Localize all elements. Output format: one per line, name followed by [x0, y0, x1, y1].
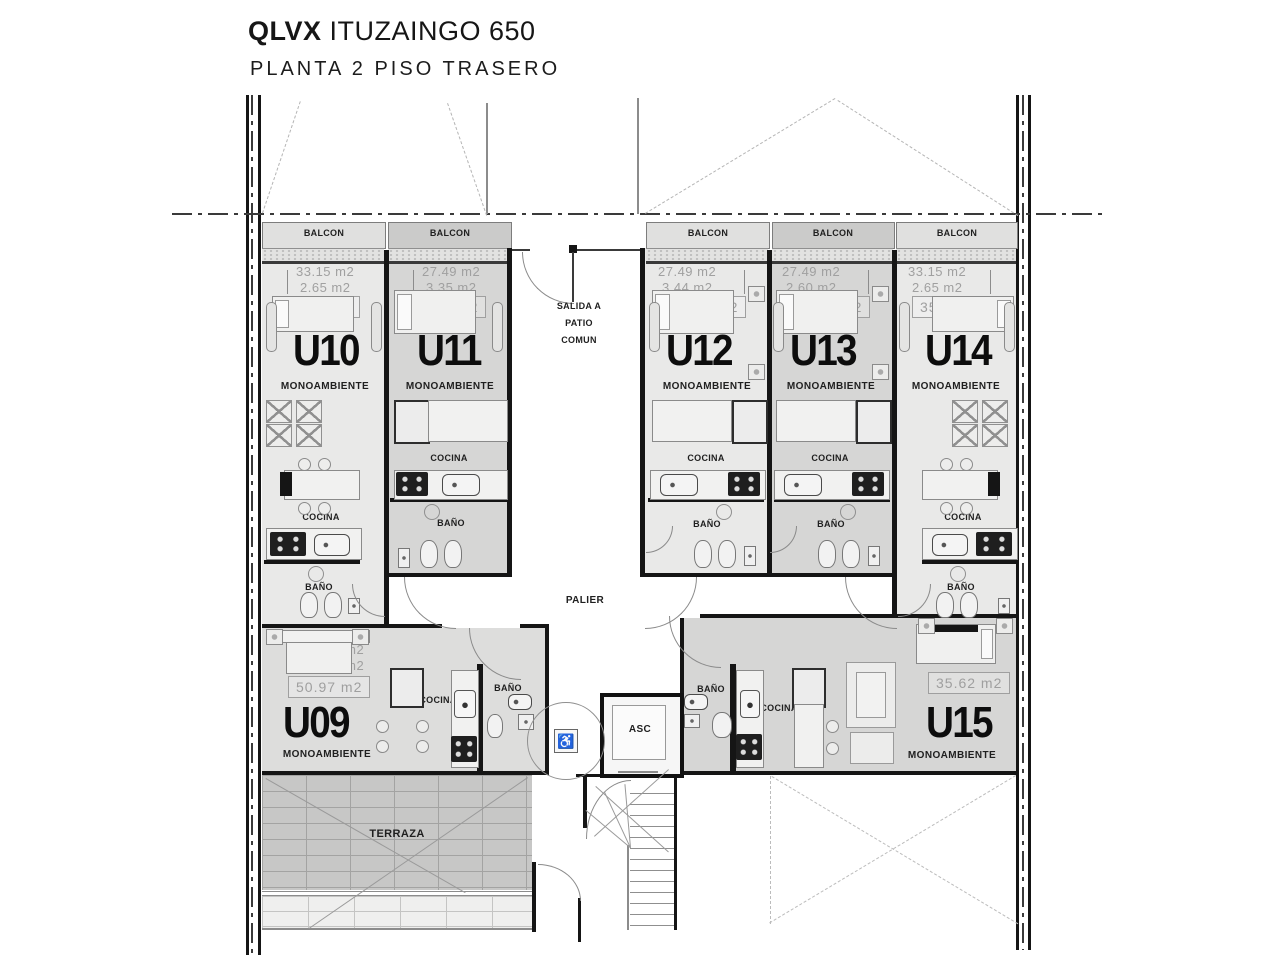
u15-type: MONOAMBIENTE: [908, 750, 996, 761]
u09-id: U09: [283, 698, 349, 748]
stove-icon: [396, 472, 428, 496]
shower-drain-icon: [744, 546, 756, 566]
stove-icon: [852, 472, 884, 496]
elevator-label: ASC: [629, 724, 651, 735]
u09-type: MONOAMBIENTE: [283, 749, 371, 760]
kitchen-island: [922, 470, 998, 500]
chair-icon: [952, 424, 978, 447]
bathroom-label: BAÑO: [947, 582, 975, 592]
exit-door-swing: [522, 252, 574, 304]
wall: [892, 250, 897, 618]
u14-covered: 33.15 m2: [908, 264, 966, 279]
void-dash: [770, 776, 771, 924]
property-line-left: [251, 95, 253, 955]
u11-type: MONOAMBIENTE: [406, 381, 494, 392]
chair-icon: [296, 424, 322, 447]
u12-type: MONOAMBIENTE: [663, 381, 751, 392]
chair-icon: [982, 400, 1008, 423]
kitchen-label: COCINA: [430, 453, 467, 463]
ceiling-light-icon: [308, 566, 324, 582]
toilet-icon: [694, 540, 712, 568]
projection-dash: [837, 100, 1018, 216]
fridge-icon: [856, 400, 892, 444]
stool: [376, 720, 389, 733]
shower-drain-icon: [398, 548, 410, 568]
headboard: [934, 625, 978, 632]
closet-icon: [748, 364, 765, 380]
u14-uncovered: 2.65 m2: [912, 280, 962, 295]
pillow: [397, 294, 412, 330]
stool: [940, 502, 953, 515]
sink-icon: [442, 474, 480, 496]
wall: [674, 778, 677, 930]
kitchen-island: [794, 704, 824, 768]
wall-pillar: [1004, 302, 1015, 352]
stool: [826, 742, 839, 755]
wall-pillar: [371, 302, 382, 352]
exit-label-line3: COMUN: [561, 335, 597, 345]
exit-label-line2: PATIO: [565, 318, 593, 328]
stool: [960, 502, 973, 515]
projection-dash: [645, 98, 835, 214]
ceiling-light-icon: [716, 504, 732, 520]
sink-icon: [660, 474, 698, 496]
kitchen-label: COCINA: [687, 453, 724, 463]
chair-icon: [982, 424, 1008, 447]
appliance-icon: [988, 472, 1000, 496]
wall: [384, 250, 389, 628]
wall: [264, 560, 360, 564]
closet-icon: [266, 629, 283, 645]
stair-stringer: [627, 845, 629, 930]
u09-total: 50.97 m2: [288, 676, 370, 698]
shower-drain-icon: [684, 714, 700, 728]
balcony-label: BALCON: [304, 228, 344, 238]
entry-door-swing: [669, 616, 721, 668]
kitchen-island: [284, 470, 360, 500]
plan-title: QLVX ITUZAINGO 650: [248, 16, 536, 47]
u11-covered: 27.49 m2: [422, 264, 480, 279]
wall: [258, 95, 261, 955]
u15-id: U15: [926, 698, 992, 748]
closet-icon: [918, 618, 935, 634]
wall-pillar: [773, 302, 784, 352]
bathroom-label: BAÑO: [437, 518, 465, 528]
stool: [376, 740, 389, 753]
bed: [286, 642, 352, 674]
shower-drain-icon: [868, 546, 880, 566]
wall: [246, 95, 249, 955]
u10-id: U10: [293, 326, 359, 376]
bidet-icon: [324, 592, 342, 618]
u10-uncovered: 2.65 m2: [300, 280, 350, 295]
terrace-border-paving: [262, 896, 532, 928]
chair-icon: [296, 400, 322, 423]
bidet-icon: [718, 540, 736, 568]
toilet-icon: [818, 540, 836, 568]
toilet-icon: [300, 592, 318, 618]
closet-icon: [352, 629, 369, 645]
toilet-icon: [712, 712, 732, 738]
terrace-label: TERRAZA: [369, 828, 424, 840]
wall: [583, 776, 587, 828]
property-line-front: [172, 213, 1108, 215]
kitchen-counter: [428, 400, 508, 442]
bidet-icon: [842, 540, 860, 568]
exit-label-line1: SALIDA A: [557, 301, 601, 311]
ceiling-light-icon: [950, 566, 966, 582]
sink-icon: [784, 474, 822, 496]
elevator-door: [618, 771, 658, 773]
door-swing: [538, 864, 581, 901]
wall-pillar: [649, 302, 660, 352]
dim-leader: [287, 270, 288, 294]
stove-icon: [736, 734, 762, 760]
sink-icon: [684, 694, 708, 710]
ceiling-light-icon: [424, 504, 440, 520]
fridge-icon: [394, 400, 430, 444]
fridge-icon: [390, 668, 424, 708]
oven-icon: [454, 690, 476, 718]
dim-leader: [868, 270, 869, 294]
ceiling-light-icon: [840, 504, 856, 520]
wall: [520, 624, 549, 628]
dim-leader: [990, 270, 991, 294]
u13-type: MONOAMBIENTE: [787, 381, 875, 392]
projection-line: [637, 98, 639, 214]
chair-icon: [952, 400, 978, 423]
door-leaf: [572, 252, 574, 302]
wall-pillar: [899, 302, 910, 352]
address: ITUZAINGO 650: [330, 16, 536, 46]
wall: [684, 771, 1018, 775]
terrace-edge: [262, 891, 532, 892]
sink-icon: [314, 534, 350, 556]
chair-icon: [266, 424, 292, 447]
wall: [640, 248, 645, 577]
closet-icon: [872, 286, 889, 302]
bathroom-label: BAÑO: [494, 683, 522, 693]
stair-treads: [630, 793, 674, 930]
property-line-right: [1022, 95, 1024, 950]
closet-icon: [872, 364, 889, 380]
balcony-label: BALCON: [688, 228, 728, 238]
shower-drain-icon: [998, 598, 1010, 614]
oven-icon: [740, 690, 760, 718]
wall: [532, 862, 536, 932]
stool: [298, 502, 311, 515]
u15-total: 35.62 m2: [928, 672, 1010, 694]
closet-icon: [996, 618, 1013, 634]
bidet-icon: [444, 540, 462, 568]
toilet-icon: [420, 540, 438, 568]
balcony-label: BALCON: [813, 228, 853, 238]
bidet-icon: [960, 592, 978, 618]
hall-label: PALIER: [566, 595, 604, 606]
dim-leader: [744, 270, 745, 294]
projection-dash: [447, 103, 487, 216]
bathroom-label: BAÑO: [693, 519, 721, 529]
kitchen-counter: [776, 400, 856, 442]
wall: [575, 249, 640, 251]
sofa-cushion: [856, 672, 886, 718]
toilet-icon: [487, 714, 503, 738]
stove-icon: [976, 532, 1012, 556]
appliance-icon: [280, 472, 292, 496]
void-diagonal: [771, 776, 1018, 924]
bathroom-label: BAÑO: [305, 582, 333, 592]
stool: [416, 740, 429, 753]
floor-plan: QLVX ITUZAINGO 650 PLANTA 2 PISO TRASERO…: [0, 0, 1280, 960]
projection-line: [486, 103, 488, 214]
kitchen-counter: [652, 400, 732, 442]
wall-pillar: [492, 302, 503, 352]
stove-icon: [728, 472, 760, 496]
kitchen-label: COCINA: [811, 453, 848, 463]
balcony-label: BALCON: [937, 228, 977, 238]
entry-door-swing: [404, 577, 456, 629]
pillow: [275, 300, 289, 328]
wall: [1028, 95, 1031, 950]
balcony-label: BALCON: [430, 228, 470, 238]
pillow: [981, 629, 993, 659]
stove-icon: [270, 532, 306, 556]
brand-name: QLVX: [248, 16, 322, 46]
wall: [512, 249, 530, 251]
fridge-icon: [792, 668, 826, 708]
wheelchair-icon: ♿: [554, 729, 578, 753]
plan-subtitle: PLANTA 2 PISO TRASERO: [250, 58, 560, 81]
u14-type: MONOAMBIENTE: [912, 381, 1000, 392]
door-leaf: [578, 898, 581, 942]
fridge-icon: [732, 400, 768, 444]
wall: [922, 560, 1016, 564]
closet-icon: [748, 286, 765, 302]
u10-type: MONOAMBIENTE: [281, 381, 369, 392]
sink-icon: [932, 534, 968, 556]
wall: [262, 624, 442, 628]
bathroom-label: BAÑO: [817, 519, 845, 529]
bathroom-label: BAÑO: [697, 684, 725, 694]
projection-dash: [262, 101, 301, 213]
u12-covered: 27.49 m2: [658, 264, 716, 279]
stove-icon: [451, 736, 477, 762]
toilet-icon: [936, 592, 954, 618]
stool: [318, 502, 331, 515]
chair-icon: [266, 400, 292, 423]
terrace-edge: [262, 928, 532, 930]
ottoman: [850, 732, 894, 764]
sink-icon: [508, 694, 532, 710]
stool: [416, 720, 429, 733]
u10-covered: 33.15 m2: [296, 264, 354, 279]
stool: [826, 720, 839, 733]
u13-covered: 27.49 m2: [782, 264, 840, 279]
wall-pillar: [266, 302, 277, 352]
u14-id: U14: [925, 326, 991, 376]
